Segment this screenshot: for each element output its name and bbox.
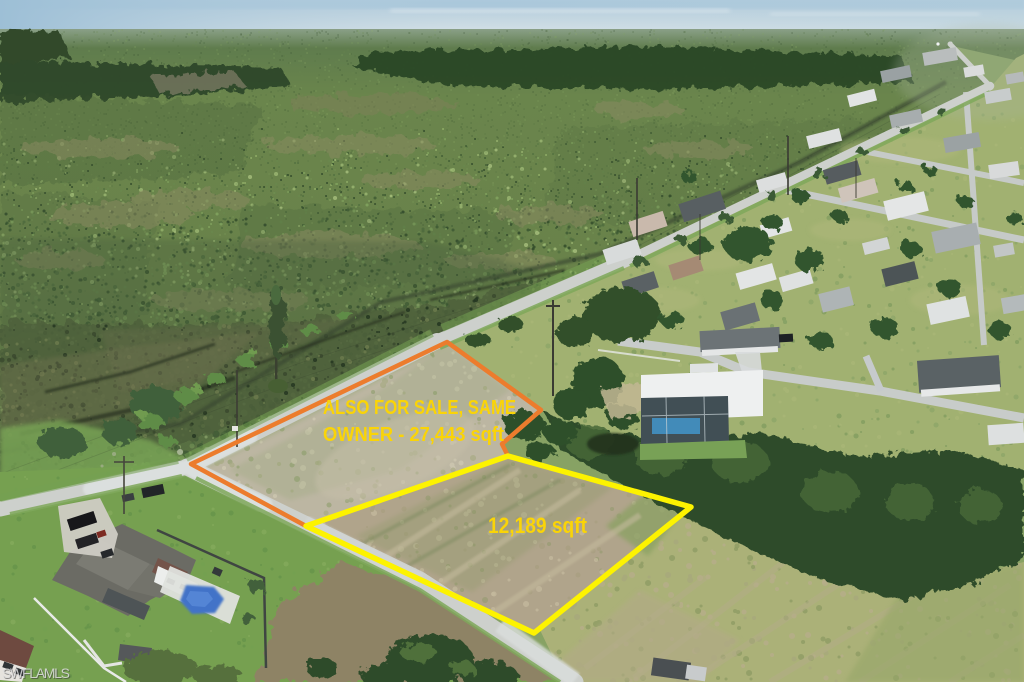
svg-text:OWNER - 27,443 sqft: OWNER - 27,443 sqft xyxy=(323,424,504,446)
svg-text:12,189 sqft: 12,189 sqft xyxy=(488,513,588,538)
svg-text:ALSO FOR SALE, SAME: ALSO FOR SALE, SAME xyxy=(323,397,516,419)
svg-text:SWFLAMLS: SWFLAMLS xyxy=(2,665,70,681)
